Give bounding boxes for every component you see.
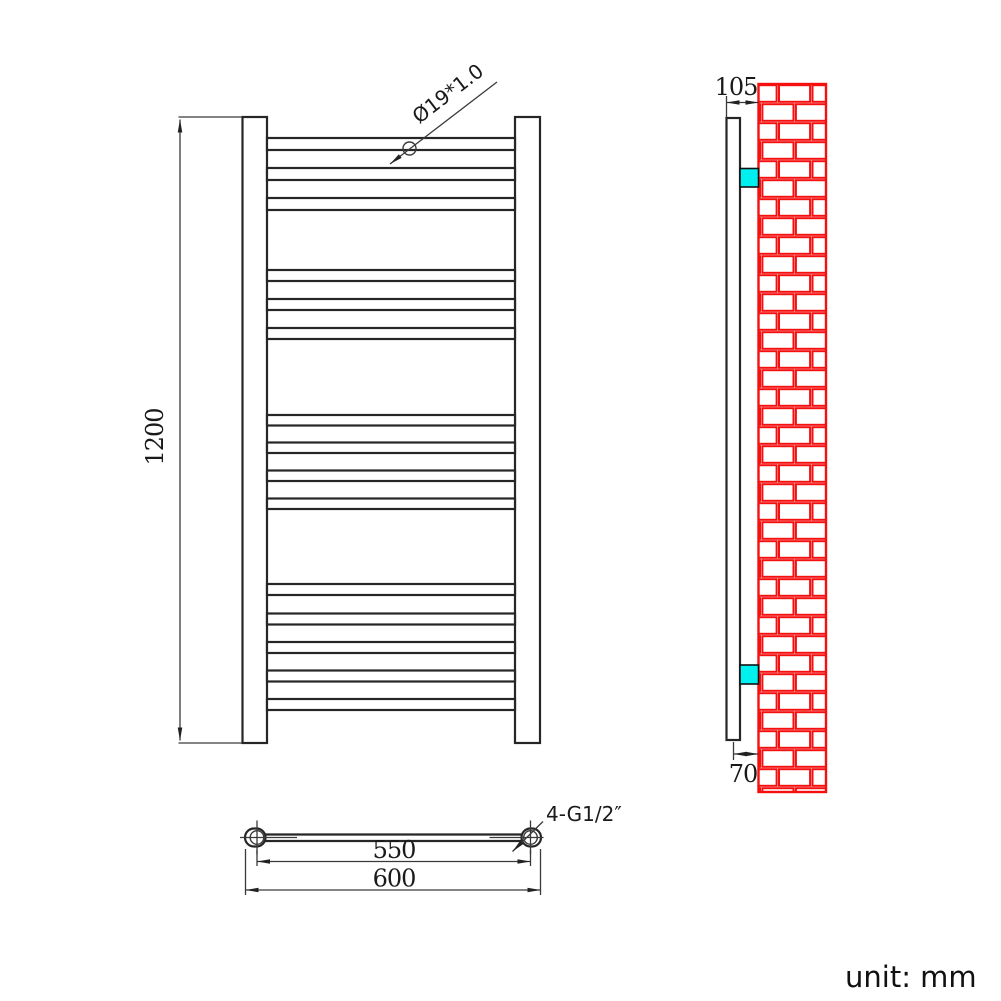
brick [695, 180, 726, 197]
brick [880, 85, 911, 102]
brick [712, 807, 743, 824]
brick [746, 427, 777, 444]
brick [880, 579, 911, 596]
brick [863, 484, 894, 501]
brick [880, 237, 911, 254]
brick [779, 237, 810, 254]
brick [829, 294, 860, 311]
brick [779, 427, 810, 444]
brick [846, 579, 877, 596]
brick [796, 332, 827, 349]
brick [846, 389, 877, 406]
brick [880, 275, 911, 292]
brick [813, 541, 844, 558]
brick [695, 560, 726, 577]
top-offset-label: 105 [715, 73, 758, 101]
brick [846, 541, 877, 558]
tube-bar [267, 642, 515, 653]
brick [746, 503, 777, 520]
brick [846, 807, 877, 824]
brick [829, 522, 860, 539]
brick [796, 598, 827, 615]
tube-bar [267, 584, 515, 595]
brick [796, 484, 827, 501]
brick [829, 598, 860, 615]
brick [846, 465, 877, 482]
brick [846, 199, 877, 216]
brick [695, 256, 726, 273]
brick [779, 655, 810, 672]
brick [829, 218, 860, 235]
brick [779, 807, 810, 824]
brick [863, 712, 894, 729]
brick [729, 788, 760, 805]
brick [779, 199, 810, 216]
brick [695, 598, 726, 615]
brick [813, 123, 844, 140]
brick [813, 503, 844, 520]
wall-offset-dimension: 70 [729, 742, 759, 788]
brick [813, 313, 844, 330]
brick [779, 85, 810, 102]
brick [813, 579, 844, 596]
brick [829, 446, 860, 463]
brick [746, 389, 777, 406]
tube-bar [267, 671, 515, 682]
tube-bar [267, 299, 515, 310]
brick [762, 142, 793, 159]
brick [846, 731, 877, 748]
brick [813, 769, 844, 786]
brick [796, 370, 827, 387]
brick [762, 484, 793, 501]
brick [779, 123, 810, 140]
brick [762, 788, 793, 805]
brick [863, 522, 894, 539]
brick [863, 218, 894, 235]
brick [762, 636, 793, 653]
technical-drawing-canvas: 1200 Ø19*1.0 550 [0, 0, 1001, 1001]
tube-bars [267, 138, 515, 710]
brick [846, 617, 877, 634]
brick [746, 541, 777, 558]
brick [796, 712, 827, 729]
brick [813, 275, 844, 292]
brick [762, 522, 793, 539]
brick [779, 503, 810, 520]
brick [880, 389, 911, 406]
brick [829, 636, 860, 653]
right-rail [515, 117, 540, 743]
brick [863, 332, 894, 349]
brick [846, 655, 877, 672]
tube-bar [267, 328, 515, 339]
brick [779, 769, 810, 786]
tube-bar [267, 270, 515, 281]
brick [695, 788, 726, 805]
brick [762, 104, 793, 121]
brick [796, 142, 827, 159]
brick [796, 788, 827, 805]
brick [880, 731, 911, 748]
brick [813, 351, 844, 368]
brick [846, 85, 877, 102]
brick [779, 389, 810, 406]
brick [762, 712, 793, 729]
brick [779, 275, 810, 292]
brick [863, 256, 894, 273]
brick [880, 161, 911, 178]
brick [813, 807, 844, 824]
unit-note: unit: mm [845, 960, 977, 994]
brick [695, 522, 726, 539]
tube-dia-label: Ø19*1.0 [408, 59, 488, 129]
brick [762, 446, 793, 463]
brick [779, 617, 810, 634]
tube-bar [267, 471, 515, 482]
brick [762, 598, 793, 615]
brick [796, 104, 827, 121]
brick [846, 503, 877, 520]
brick [880, 693, 911, 710]
brick [796, 636, 827, 653]
tube-bar [267, 614, 515, 625]
top-wall-bracket [740, 169, 759, 188]
brick [746, 693, 777, 710]
brick [695, 446, 726, 463]
brick [863, 674, 894, 691]
tube-bar [267, 699, 515, 710]
rail-side-profile [727, 118, 741, 740]
brick [762, 750, 793, 767]
brick [880, 769, 911, 786]
brick [846, 161, 877, 178]
brick [863, 446, 894, 463]
brick [863, 788, 894, 805]
brick [779, 313, 810, 330]
top-offset-dimension: 105 [715, 73, 759, 117]
brick [863, 750, 894, 767]
left-rail [243, 117, 268, 743]
inner-width-label: 550 [373, 836, 416, 864]
brick [829, 256, 860, 273]
brick [746, 313, 777, 330]
brick [863, 142, 894, 159]
brick [880, 427, 911, 444]
brick [695, 142, 726, 159]
brick [863, 598, 894, 615]
brick [829, 370, 860, 387]
tube-bar [267, 443, 515, 454]
brick [829, 104, 860, 121]
brick [829, 142, 860, 159]
height-dim-label: 1200 [141, 408, 169, 465]
brick [863, 294, 894, 311]
brick [880, 199, 911, 216]
brick [762, 370, 793, 387]
brick [695, 218, 726, 235]
connections-label: 4-G1/2″ [546, 802, 622, 826]
brick [695, 484, 726, 501]
brick [796, 674, 827, 691]
front-view: 1200 Ø19*1.0 [141, 59, 540, 743]
bottom-wall-bracket [740, 665, 759, 684]
brick [829, 788, 860, 805]
brick [695, 712, 726, 729]
brick [779, 541, 810, 558]
brick [880, 617, 911, 634]
brick [695, 408, 726, 425]
brick [863, 370, 894, 387]
brick [796, 522, 827, 539]
brick [779, 579, 810, 596]
brick [762, 560, 793, 577]
brick [829, 750, 860, 767]
brick [695, 370, 726, 387]
brick [880, 655, 911, 672]
brick [695, 104, 726, 121]
brick [695, 674, 726, 691]
brick [880, 465, 911, 482]
brick [846, 313, 877, 330]
brick [829, 180, 860, 197]
brick [846, 351, 877, 368]
brick [863, 408, 894, 425]
right-connection [490, 821, 544, 855]
brick [746, 807, 777, 824]
height-dimension: 1200 [141, 117, 242, 743]
tube-bar [267, 198, 515, 210]
tube-bar [267, 415, 515, 426]
brick [779, 351, 810, 368]
tube-bar [267, 168, 515, 180]
brick [796, 256, 827, 273]
brick [863, 560, 894, 577]
brick [762, 332, 793, 349]
brick [796, 560, 827, 577]
brick [746, 617, 777, 634]
brick [746, 465, 777, 482]
brick [695, 294, 726, 311]
brick [846, 427, 877, 444]
side-view: 105 70 [695, 73, 910, 824]
brick [829, 560, 860, 577]
brick [813, 85, 844, 102]
brick [762, 294, 793, 311]
brick [813, 237, 844, 254]
brick [813, 389, 844, 406]
brick [796, 446, 827, 463]
brick [880, 351, 911, 368]
brick [813, 731, 844, 748]
brick [746, 579, 777, 596]
brick [813, 693, 844, 710]
left-connection [240, 821, 297, 855]
brick [829, 408, 860, 425]
brick [746, 275, 777, 292]
brick [779, 693, 810, 710]
brick [829, 674, 860, 691]
brick [863, 636, 894, 653]
brick [779, 465, 810, 482]
brick [880, 807, 911, 824]
brick [880, 313, 911, 330]
brick [846, 275, 877, 292]
tube-bar [267, 138, 515, 150]
brick [813, 199, 844, 216]
brick [813, 617, 844, 634]
brick [829, 332, 860, 349]
brick [846, 237, 877, 254]
brick [880, 503, 911, 520]
brick [762, 674, 793, 691]
brick [762, 408, 793, 425]
brick [829, 484, 860, 501]
brick [813, 427, 844, 444]
brick [813, 161, 844, 178]
brick [695, 332, 726, 349]
brick [695, 750, 726, 767]
brick [846, 123, 877, 140]
brick [846, 693, 877, 710]
outer-width-label: 600 [373, 865, 416, 893]
brick [762, 218, 793, 235]
brick [796, 218, 827, 235]
brick [813, 655, 844, 672]
brick [796, 180, 827, 197]
brick [796, 408, 827, 425]
brick [746, 731, 777, 748]
brick [813, 465, 844, 482]
brick [762, 256, 793, 273]
wall-outline [759, 84, 827, 792]
brick [880, 541, 911, 558]
tube-bar [267, 499, 515, 510]
brick [863, 104, 894, 121]
brick [796, 750, 827, 767]
brick [829, 712, 860, 729]
brick [746, 237, 777, 254]
brick [746, 123, 777, 140]
brick [863, 180, 894, 197]
brick [746, 351, 777, 368]
brick [695, 636, 726, 653]
brick [762, 180, 793, 197]
brick [846, 769, 877, 786]
plan-view: 550 600 4-G1/2″ [240, 802, 622, 895]
brick [779, 731, 810, 748]
brick [796, 294, 827, 311]
brick [880, 123, 911, 140]
brick [746, 199, 777, 216]
wall-offset-label: 70 [729, 760, 758, 788]
brick [779, 161, 810, 178]
